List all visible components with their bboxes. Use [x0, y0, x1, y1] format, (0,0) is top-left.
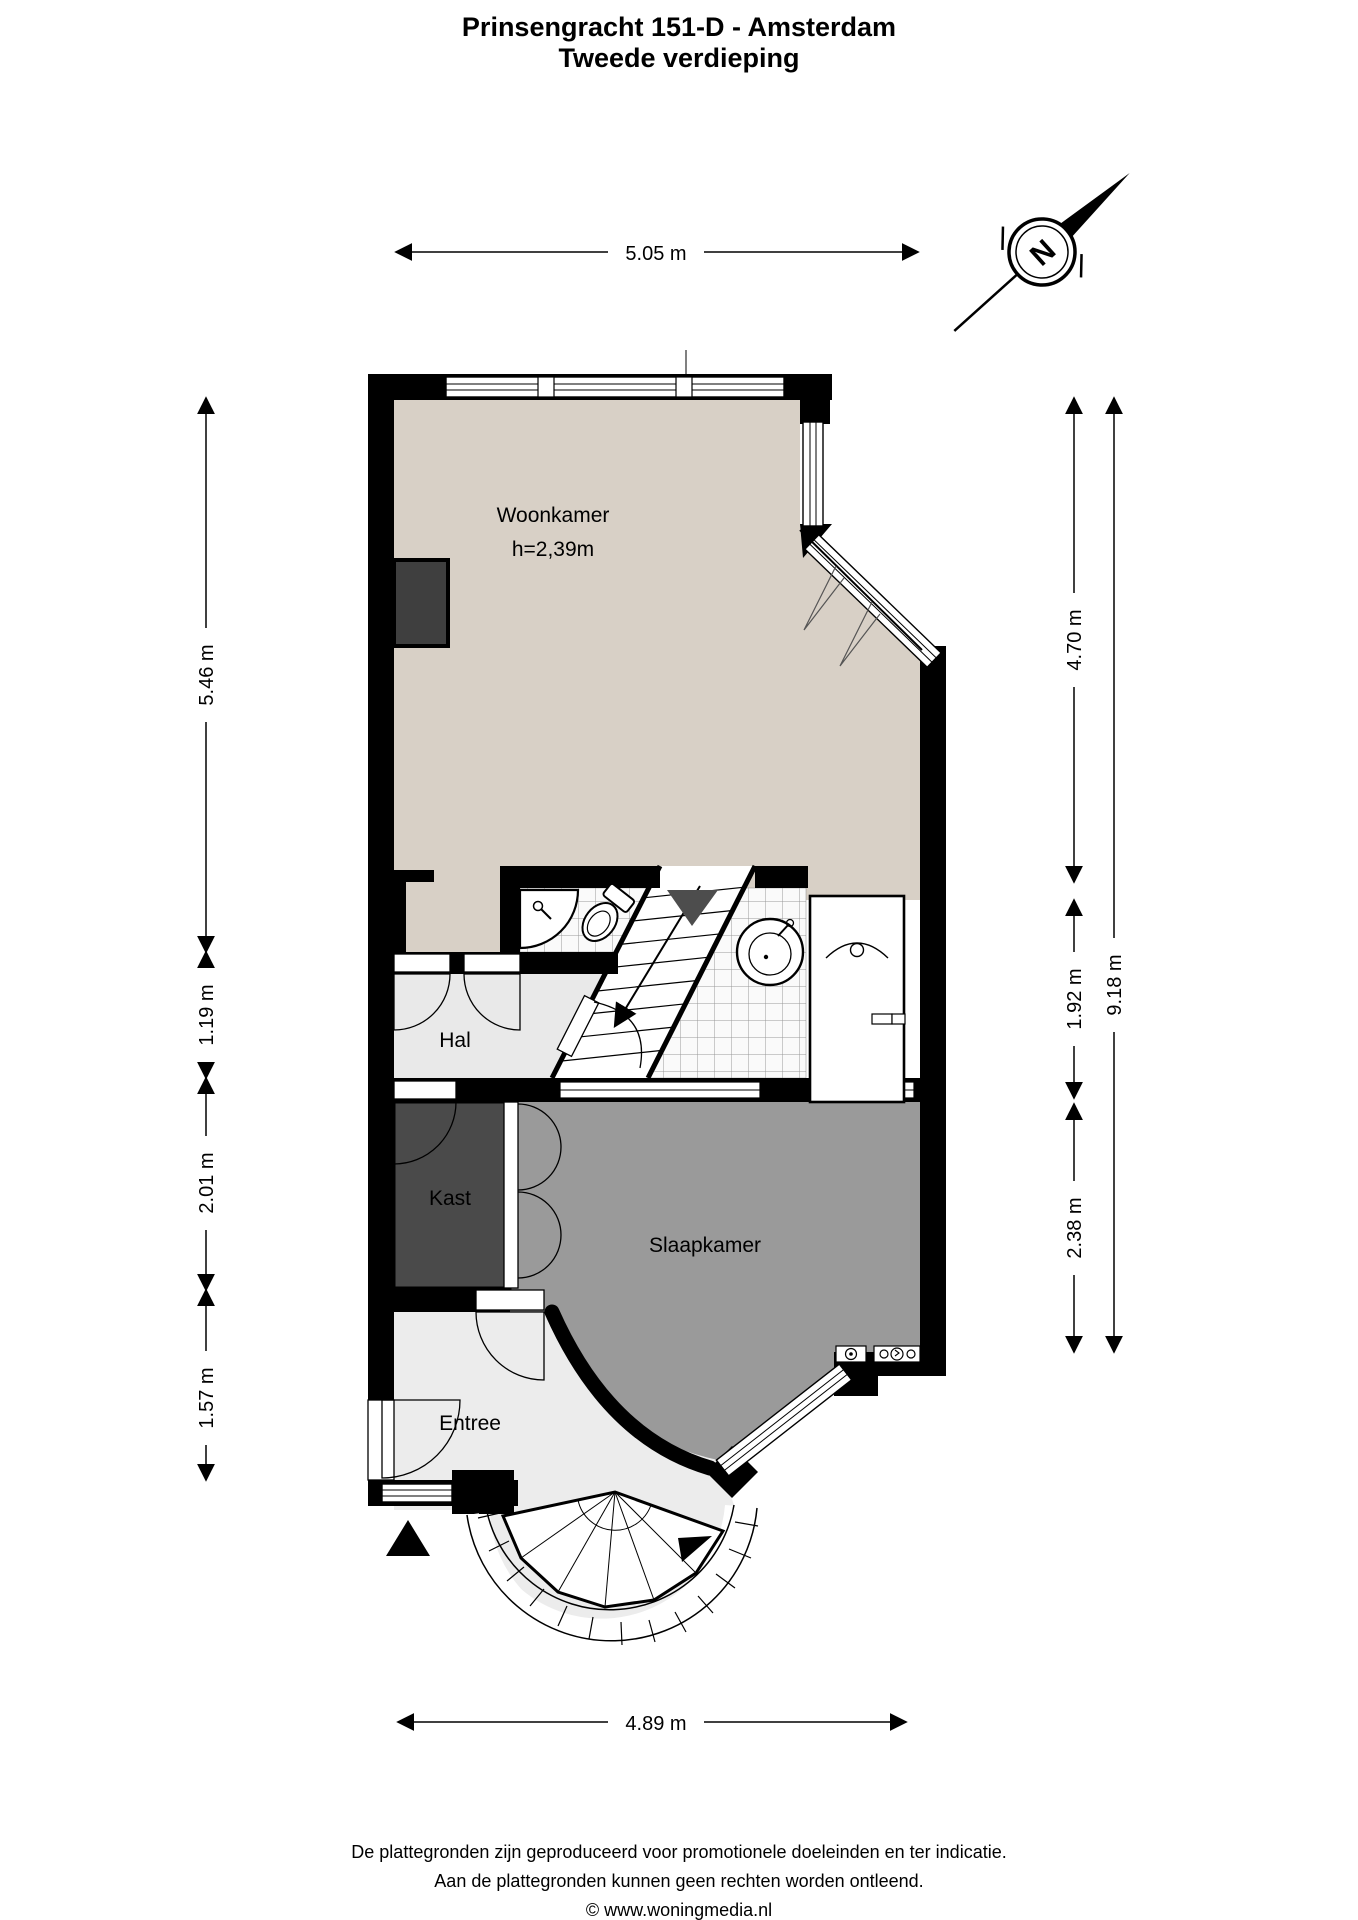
dim-left-1: 5.46 m [196, 644, 218, 705]
entree-bottom-window [382, 1484, 452, 1502]
footer-disclaimer: De plattegronden zijn geproduceerd voor … [0, 1838, 1358, 1920]
dim-right-2: 1.92 m [1064, 968, 1086, 1029]
label-entree: Entree [439, 1412, 501, 1435]
footer-line-1: De plattegronden zijn geproduceerd voor … [0, 1838, 1358, 1867]
label-slaapkamer: Slaapkamer [649, 1234, 761, 1257]
dim-right-outer: 9.18 m [1104, 954, 1126, 1015]
bathtub [810, 896, 905, 1102]
label-woonkamer: Woonkamer [497, 504, 610, 527]
right-upper-window [803, 422, 823, 526]
footer-copyright: © www.woningmedia.nl [0, 1896, 1358, 1920]
dim-left-2: 1.19 m [196, 984, 218, 1045]
label-woonkamer-height: h=2,39m [512, 538, 594, 561]
washbasin [737, 919, 803, 985]
dim-top: 5.05 m [625, 243, 686, 265]
dim-right-3: 2.38 m [1064, 1197, 1086, 1258]
floorplan-page: Prinsengracht 151-D - Amsterdam Tweede v… [0, 0, 1358, 1920]
footer-line-2: Aan de plattegronden kunnen geen rechten… [0, 1867, 1358, 1896]
dim-bottom: 4.89 m [625, 1713, 686, 1735]
floorplan-drawing: Woonkamer h=2,39m Hal Kast Slaapkamer En… [0, 0, 1358, 1920]
dim-left-4: 1.57 m [196, 1367, 218, 1428]
label-hal: Hal [439, 1029, 471, 1052]
top-window [446, 350, 784, 397]
dim-right-1: 4.70 m [1064, 609, 1086, 670]
dim-left-3: 2.01 m [196, 1152, 218, 1213]
entrance-arrow [386, 1520, 430, 1556]
label-kast: Kast [429, 1187, 471, 1210]
electrical-symbols [836, 1346, 920, 1362]
compass-north: N [924, 140, 1160, 365]
